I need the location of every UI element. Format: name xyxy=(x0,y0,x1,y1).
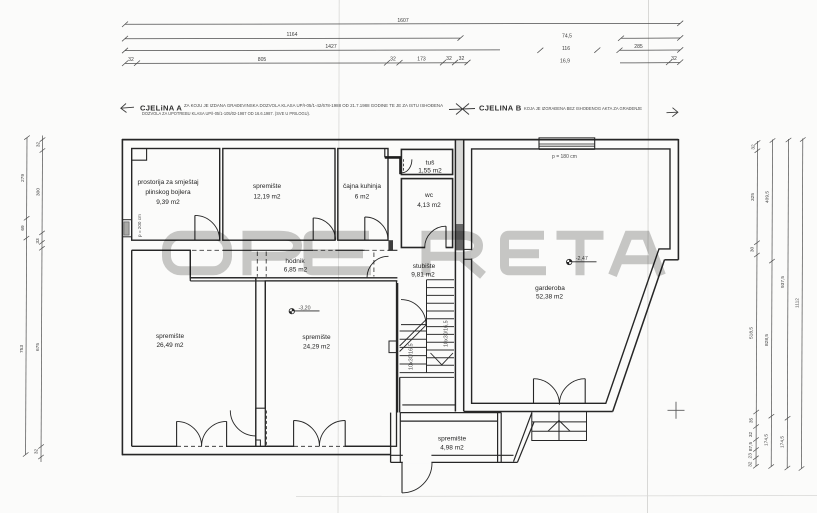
svg-text:74,5: 74,5 xyxy=(562,34,572,40)
svg-text:937,5: 937,5 xyxy=(780,276,786,288)
svg-text:plinskog bojlera: plinskog bojlera xyxy=(145,189,191,196)
svg-text:675: 675 xyxy=(35,343,41,351)
svg-text:52,38 m2: 52,38 m2 xyxy=(536,293,563,300)
svg-text:spremište: spremište xyxy=(302,334,331,341)
svg-text:23: 23 xyxy=(748,453,754,459)
svg-text:69: 69 xyxy=(20,225,26,231)
svg-text:409,5: 409,5 xyxy=(765,191,771,203)
svg-text:26,49 m2: 26,49 m2 xyxy=(156,342,183,349)
svg-text:9,39 m2: 9,39 m2 xyxy=(156,199,180,206)
svg-text:1112: 1112 xyxy=(795,298,801,308)
svg-text:wc: wc xyxy=(424,192,434,199)
svg-text:-3,20: -3,20 xyxy=(299,305,311,311)
svg-text:32: 32 xyxy=(390,56,396,62)
svg-text:518,5: 518,5 xyxy=(748,327,754,339)
svg-text:174,5: 174,5 xyxy=(763,434,769,446)
svg-text:828,5: 828,5 xyxy=(764,334,770,346)
svg-text:1,55 m2: 1,55 m2 xyxy=(418,168,442,175)
svg-text:spremište: spremište xyxy=(156,333,185,340)
svg-text:garderoba: garderoba xyxy=(535,285,565,292)
svg-text:32: 32 xyxy=(671,56,677,62)
svg-text:1164: 1164 xyxy=(287,32,298,38)
svg-text:30: 30 xyxy=(749,247,755,253)
svg-text:173: 173 xyxy=(417,56,426,62)
svg-text:1427: 1427 xyxy=(325,44,336,50)
svg-text:33: 33 xyxy=(35,238,41,244)
svg-text:spremište: spremište xyxy=(438,435,467,442)
svg-text:32: 32 xyxy=(34,449,40,455)
svg-text:16,9: 16,9 xyxy=(560,59,570,65)
svg-text:ZA KOJU JE IZDANA GRAĐEVINSKA: ZA KOJU JE IZDANA GRAĐEVINSKA DOZVOLA KL… xyxy=(184,103,444,108)
svg-text:32: 32 xyxy=(36,142,42,148)
svg-text:4,98 m2: 4,98 m2 xyxy=(440,444,464,451)
svg-text:6 m2: 6 m2 xyxy=(355,194,370,201)
svg-text:753: 753 xyxy=(19,345,25,353)
svg-text:24,29 m2: 24,29 m2 xyxy=(303,343,330,350)
svg-text:CJELINA B: CJELINA B xyxy=(479,104,522,113)
svg-text:tuš: tuš xyxy=(426,160,435,167)
svg-text:325: 325 xyxy=(750,193,756,201)
svg-text:10x30/16,5: 10x30/16,5 xyxy=(443,320,449,347)
svg-text:32: 32 xyxy=(128,57,134,63)
svg-text:p = 180 cm: p = 180 cm xyxy=(552,154,577,160)
svg-text:1607: 1607 xyxy=(397,18,408,24)
svg-text:32: 32 xyxy=(446,56,452,62)
svg-text:spremište: spremište xyxy=(253,183,282,190)
svg-text:p = 200 cm: p = 200 cm xyxy=(137,214,142,237)
svg-text:32: 32 xyxy=(748,432,754,438)
svg-text:4,13 m2: 4,13 m2 xyxy=(417,202,441,209)
svg-text:116: 116 xyxy=(562,46,570,52)
svg-text:32: 32 xyxy=(748,461,754,467)
svg-text:805: 805 xyxy=(258,57,267,63)
svg-text:čajna kuhinja: čajna kuhinja xyxy=(343,183,381,190)
svg-text:174,5: 174,5 xyxy=(779,436,785,448)
svg-text:DOZVOLA ZA UPOTREBU KLASA UP/I: DOZVOLA ZA UPOTREBU KLASA UP/I-05/1-105/… xyxy=(142,111,310,116)
svg-text:32: 32 xyxy=(459,56,465,62)
svg-text:285: 285 xyxy=(634,44,643,50)
svg-text:87,5: 87,5 xyxy=(748,442,754,452)
svg-text:10x30/16,5: 10x30/16,5 xyxy=(408,343,414,370)
svg-text:KOJA JE IZGRAĐENA BEZ ISHOĐENO: KOJA JE IZGRAĐENA BEZ ISHOĐENOG AKTA ZA … xyxy=(524,106,642,111)
svg-text:35: 35 xyxy=(748,418,754,424)
svg-text:12,19 m2: 12,19 m2 xyxy=(253,194,280,201)
svg-text:300: 300 xyxy=(36,188,42,196)
svg-text:32: 32 xyxy=(751,144,757,150)
svg-text:prostorija za smještaj: prostorija za smještaj xyxy=(137,179,198,186)
svg-text:279: 279 xyxy=(20,174,26,182)
